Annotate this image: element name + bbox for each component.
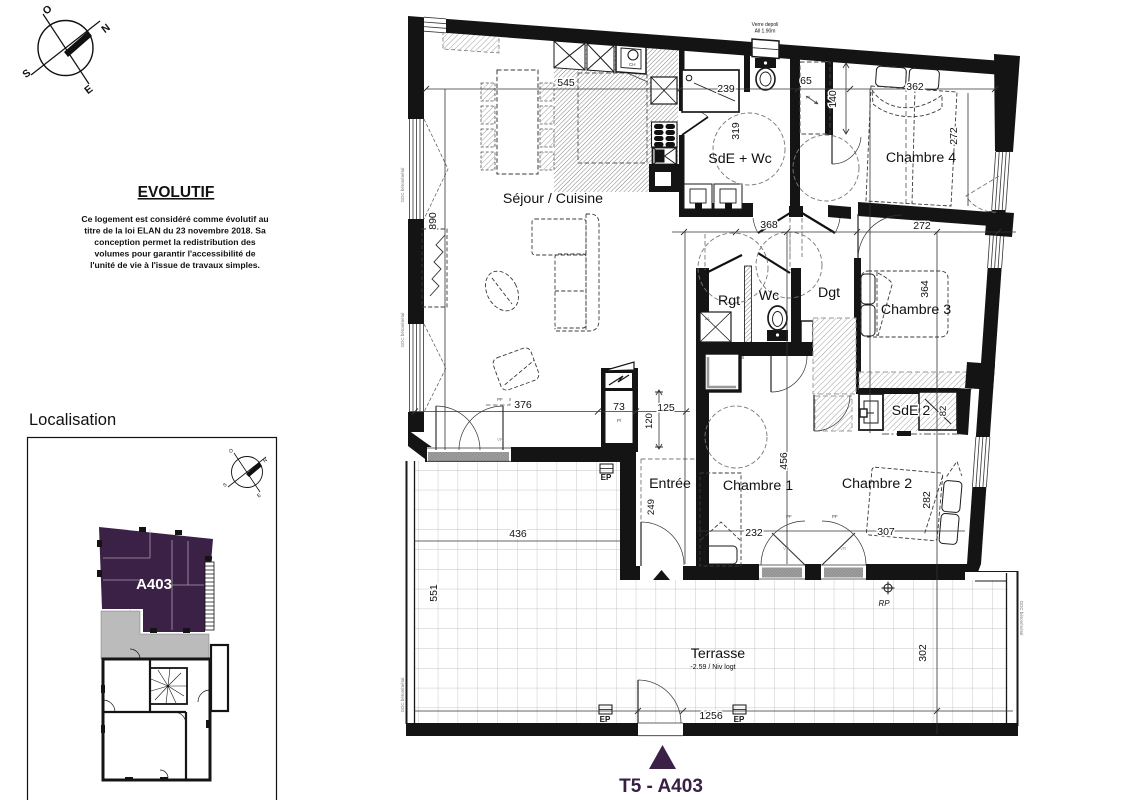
svg-text:Localisation: Localisation [29,411,116,429]
svg-text:364: 364 [919,280,931,298]
svg-text:Wc: Wc [759,288,780,304]
svg-text:232: 232 [745,527,763,539]
svg-text:65: 65 [800,75,812,87]
svg-text:PF: PF [497,397,503,402]
svg-text:PF: PF [832,514,838,519]
svg-text:Chambre 2: Chambre 2 [842,476,912,492]
svg-text:EP: EP [601,473,612,482]
svg-text:VR: VR [497,437,504,442]
svg-text:Dgt: Dgt [818,285,840,301]
svg-text:Chambre 3: Chambre 3 [881,302,951,318]
svg-text:SdE + Wc: SdE + Wc [708,151,771,167]
svg-text:Ce logement est considéré comm: Ce logement est considéré comme évolutif… [81,214,268,224]
svg-text:Entrée: Entrée [649,476,691,492]
svg-text:456: 456 [778,452,790,470]
svg-text:Chambre 4: Chambre 4 [886,150,956,166]
svg-text:volumes pour garantir l'access: volumes pour garantir l'accessibilité de [94,249,255,259]
svg-text:82: 82 [938,406,949,417]
svg-text:282: 282 [921,491,933,509]
svg-text:T5 - A403: T5 - A403 [619,776,703,797]
svg-text:A403: A403 [136,576,172,593]
svg-text:319: 319 [730,122,742,140]
svg-text:545: 545 [557,77,575,89]
svg-text:All 1.90m: All 1.90m [755,29,776,35]
svg-text:302: 302 [917,644,929,662]
svg-text:120: 120 [644,413,655,429]
svg-text:376: 376 [514,399,532,411]
svg-text:LL: LL [705,316,711,321]
svg-text:EVOLUTIF: EVOLUTIF [138,184,215,201]
svg-text:GDC béton/métal: GDC béton/métal [400,678,405,713]
svg-text:SdE 2: SdE 2 [892,403,931,419]
svg-text:titre de la loi ELAN du 23 nov: titre de la loi ELAN du 23 novembre 2018… [84,226,266,236]
svg-text:Rgt: Rgt [718,293,740,309]
svg-text:VR: VR [840,546,847,551]
svg-text:GDC béton/métal: GDC béton/métal [400,168,405,203]
svg-text:EP: EP [600,715,611,724]
svg-text:Séjour / Cuisine: Séjour / Cuisine [503,191,603,207]
svg-text:272: 272 [948,127,960,145]
svg-text:1256: 1256 [699,710,723,722]
svg-text:l'unité de vie à l'issue de tr: l'unité de vie à l'issue de travaux simp… [90,260,260,270]
svg-text:CH: CH [629,62,636,67]
svg-text:EP: EP [734,715,745,724]
svg-text:551: 551 [428,584,440,602]
svg-text:125: 125 [657,402,675,414]
svg-text:272: 272 [913,220,931,232]
svg-text:140: 140 [827,90,839,108]
svg-text:P/: P/ [617,418,622,423]
svg-text:890: 890 [427,212,439,230]
svg-text:RP: RP [878,599,890,608]
svg-text:conception permet la redistrib: conception permet la redistribution des [94,237,256,247]
svg-text:Chambre 1: Chambre 1 [723,478,793,494]
svg-text:GDC béton/métal: GDC béton/métal [1019,601,1024,636]
svg-text:307: 307 [877,526,895,538]
svg-text:GDC béton/métal: GDC béton/métal [400,313,405,348]
svg-text:VR: VR [783,546,790,551]
svg-text:368: 368 [760,219,778,231]
svg-text:PF: PF [786,514,792,519]
svg-text:436: 436 [509,528,527,540]
svg-text:Terrasse: Terrasse [691,646,746,662]
svg-text:Verre depoli: Verre depoli [752,22,779,28]
svg-text:-2.59 / Niv logt: -2.59 / Niv logt [690,664,735,671]
svg-text:362: 362 [906,81,924,93]
svg-text:73: 73 [613,401,625,413]
svg-text:239: 239 [717,83,735,95]
svg-text:249: 249 [646,499,657,515]
svg-text:Pl: Pl [806,95,810,100]
